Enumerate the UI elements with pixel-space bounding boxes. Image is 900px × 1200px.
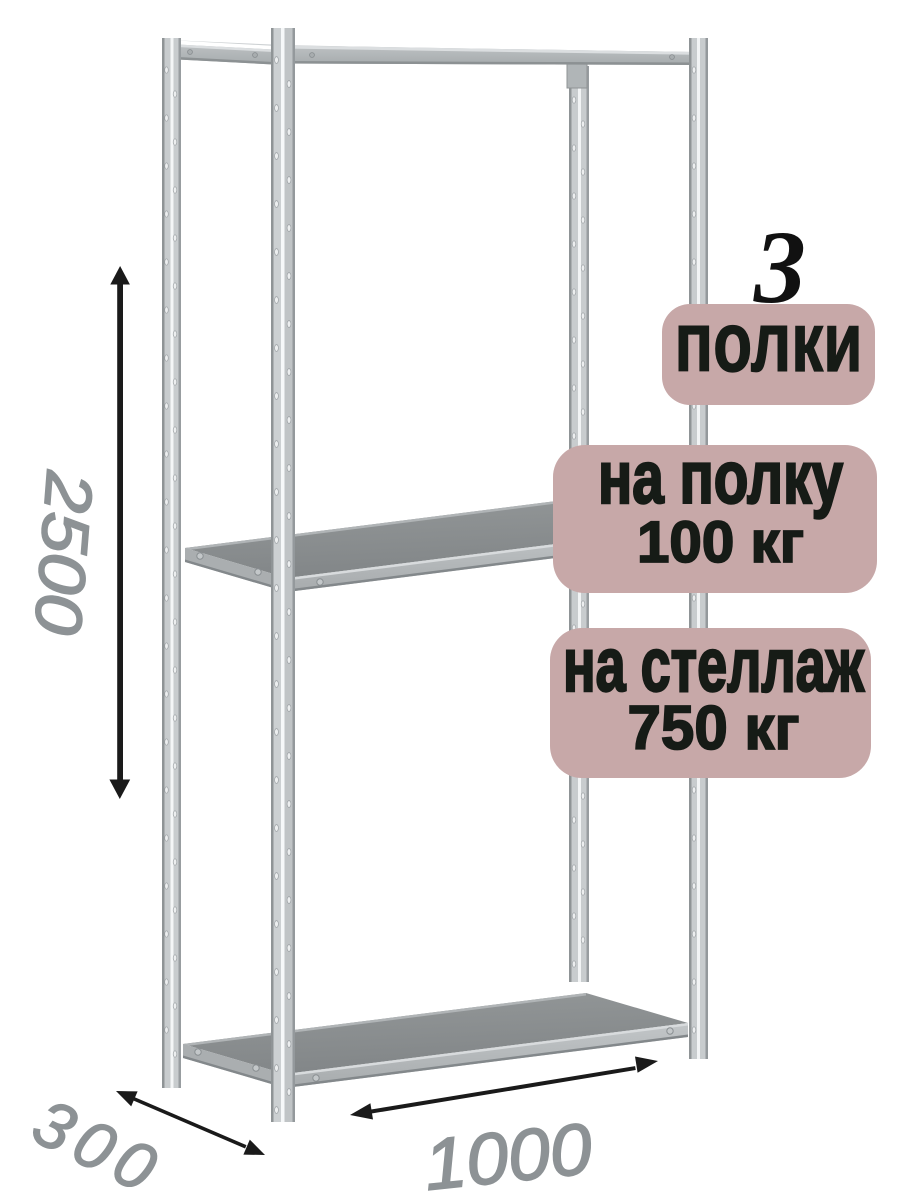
- svg-text:750 кг: 750 кг: [628, 694, 800, 763]
- svg-text:100 кг: 100 кг: [637, 510, 804, 575]
- svg-text:2500: 2500: [21, 468, 108, 638]
- svg-text:на полку: на полку: [598, 436, 843, 519]
- svg-text:полки: полки: [675, 295, 863, 389]
